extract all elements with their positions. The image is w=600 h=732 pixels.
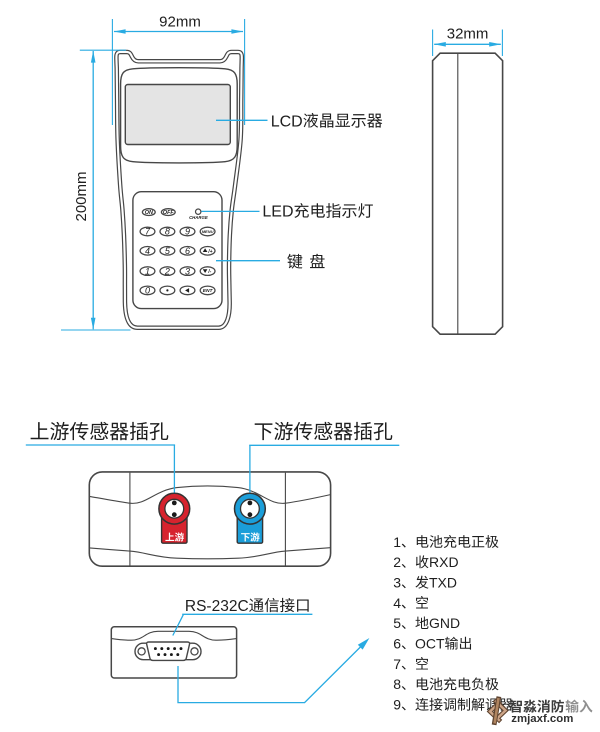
- svg-text:6: 6: [185, 246, 190, 256]
- svg-text:ENT: ENT: [203, 288, 214, 294]
- svg-text:7: 7: [393, 656, 401, 672]
- svg-text:4: 4: [393, 595, 401, 611]
- svg-text:9: 9: [393, 697, 401, 713]
- svg-text:8: 8: [165, 227, 170, 237]
- svg-text:200mm: 200mm: [73, 171, 90, 221]
- svg-text:2: 2: [164, 266, 170, 276]
- svg-text:0: 0: [145, 286, 150, 296]
- svg-text:LCD: LCD: [271, 113, 303, 130]
- svg-text:92mm: 92mm: [159, 13, 201, 30]
- svg-text:RS-232C: RS-232C: [185, 598, 249, 615]
- svg-text:4: 4: [145, 246, 150, 256]
- svg-text:ON: ON: [145, 210, 153, 216]
- svg-text:32mm: 32mm: [447, 26, 489, 43]
- svg-text:TXD: TXD: [429, 575, 457, 591]
- svg-text:9: 9: [185, 227, 190, 237]
- svg-text:OCT: OCT: [415, 636, 445, 652]
- svg-text:GND: GND: [429, 615, 460, 631]
- svg-text:8: 8: [393, 676, 401, 692]
- svg-text:RXD: RXD: [429, 554, 459, 570]
- svg-text:6: 6: [393, 636, 401, 652]
- svg-text:LED: LED: [262, 204, 293, 221]
- svg-text:MENU: MENU: [202, 229, 214, 234]
- svg-text:CHARGE: CHARGE: [189, 215, 208, 220]
- svg-text:zmjaxf.com: zmjaxf.com: [511, 713, 573, 725]
- svg-text:3: 3: [185, 266, 190, 276]
- svg-text:OFF: OFF: [163, 210, 174, 216]
- svg-text:5: 5: [393, 615, 401, 631]
- svg-text:2: 2: [393, 554, 401, 570]
- svg-text:1: 1: [145, 266, 150, 276]
- svg-text:/+: /+: [207, 249, 212, 255]
- svg-text:/-: /-: [207, 269, 211, 275]
- svg-text:1: 1: [393, 534, 401, 550]
- svg-text:3: 3: [393, 575, 401, 591]
